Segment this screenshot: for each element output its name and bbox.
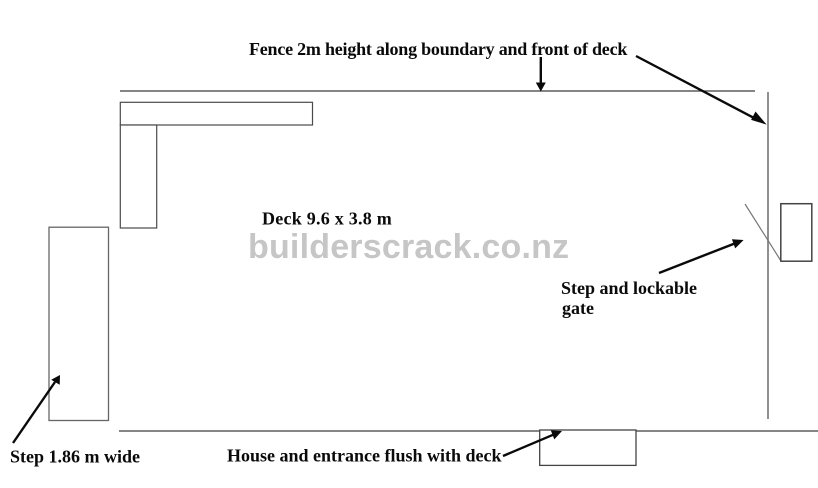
svg-text:House and entrance flush with: House and entrance flush with deck — [227, 445, 502, 465]
svg-text:gate: gate — [562, 298, 594, 318]
svg-text:Step 1.86 m wide: Step 1.86 m wide — [10, 447, 140, 467]
svg-text:Fence 2m height along boundary: Fence 2m height along boundary and front… — [249, 39, 627, 59]
svg-text:Deck 9.6 x 3.8 m: Deck 9.6 x 3.8 m — [262, 209, 392, 229]
svg-text:builderscrack.co.nz: builderscrack.co.nz — [248, 228, 569, 266]
svg-text:Step and lockable: Step and lockable — [561, 278, 697, 298]
